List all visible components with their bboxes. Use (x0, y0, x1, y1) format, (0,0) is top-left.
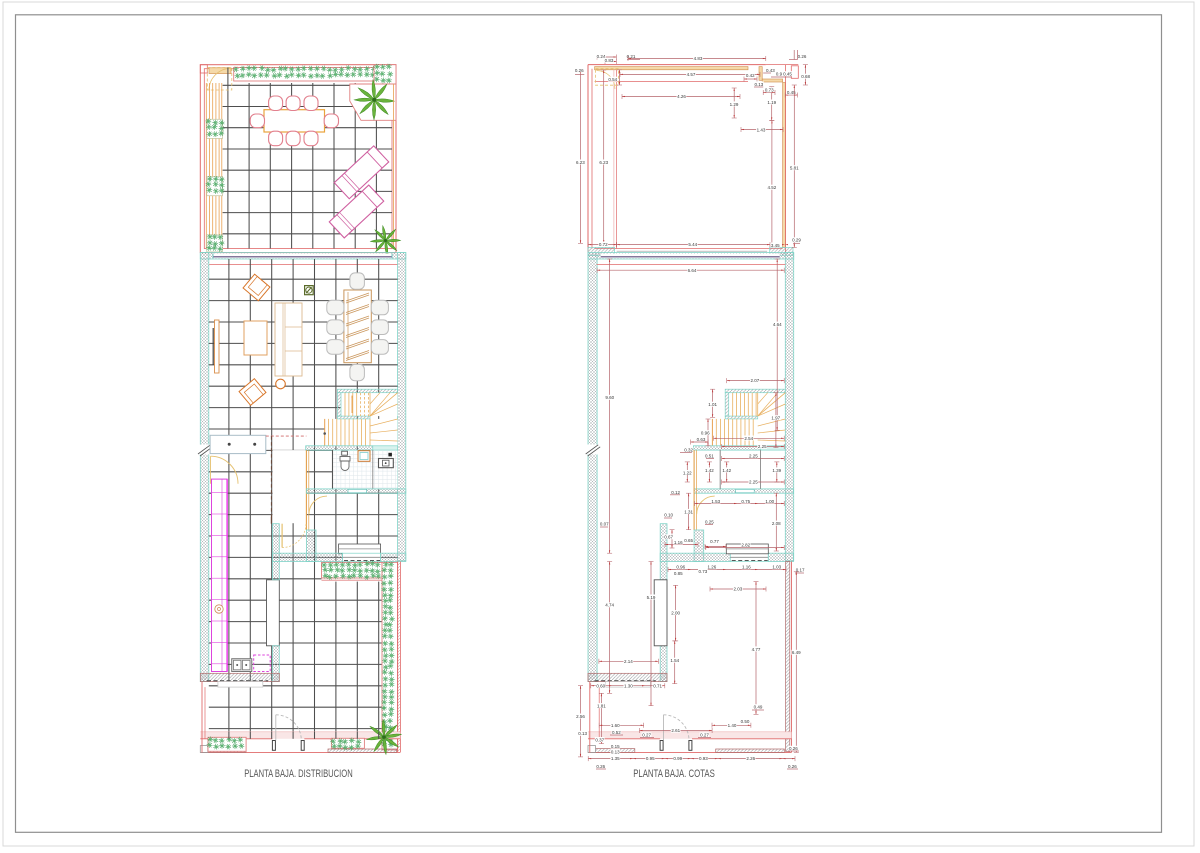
svg-text:9.60: 9.60 (605, 395, 614, 400)
svg-text:0.26: 0.26 (789, 746, 798, 751)
svg-text:1.19: 1.19 (767, 100, 776, 105)
svg-text:0.73: 0.73 (699, 569, 708, 574)
svg-text:1.97: 1.97 (771, 416, 780, 421)
svg-text:0.96: 0.96 (676, 565, 685, 570)
svg-text:2.56: 2.56 (576, 714, 585, 719)
svg-text:0.27: 0.27 (642, 733, 651, 738)
svg-text:4.64: 4.64 (773, 322, 782, 327)
svg-text:0.99: 0.99 (673, 756, 682, 761)
svg-text:0.13: 0.13 (578, 731, 587, 736)
svg-text:0.52: 0.52 (612, 730, 621, 735)
svg-text:1.35: 1.35 (611, 756, 620, 761)
svg-text:2.25: 2.25 (749, 454, 758, 459)
svg-text:2.61: 2.61 (671, 728, 680, 733)
svg-text:1.16: 1.16 (674, 540, 683, 545)
svg-text:1.00: 1.00 (765, 499, 774, 504)
svg-text:0.65: 0.65 (684, 538, 693, 543)
svg-text:5.19: 5.19 (647, 595, 656, 600)
svg-text:1.29: 1.29 (730, 102, 739, 107)
svg-text:0.96: 0.96 (701, 431, 710, 436)
svg-text:1.03: 1.03 (772, 565, 781, 570)
svg-text:1.53: 1.53 (711, 499, 720, 504)
svg-text:0.54: 0.54 (608, 77, 617, 82)
svg-text:1.26: 1.26 (708, 565, 717, 570)
svg-text:0.83: 0.83 (605, 58, 614, 63)
svg-text:0.93: 0.93 (699, 756, 708, 761)
svg-text:0.85: 0.85 (674, 571, 683, 576)
svg-text:1.42: 1.42 (705, 468, 714, 473)
svg-text:0.13: 0.13 (755, 82, 764, 87)
svg-text:1.22: 1.22 (683, 470, 692, 475)
svg-text:1.43: 1.43 (757, 127, 766, 132)
svg-text:6.64: 6.64 (688, 268, 697, 273)
svg-text:2.82: 2.82 (741, 543, 750, 548)
svg-text:2.26: 2.26 (746, 756, 755, 761)
svg-text:1.54: 1.54 (670, 658, 679, 663)
svg-text:0.95: 0.95 (646, 756, 655, 761)
svg-text:0.51: 0.51 (705, 454, 714, 459)
svg-text:0.63: 0.63 (697, 437, 706, 442)
svg-text:2.00: 2.00 (671, 611, 680, 616)
svg-text:0.07: 0.07 (600, 522, 609, 527)
svg-text:0.73: 0.73 (765, 88, 774, 93)
svg-text:PLANTA BAJA. DISTRIBUCION: PLANTA BAJA. DISTRIBUCION (244, 768, 353, 780)
svg-text:0.32: 0.32 (684, 448, 693, 453)
svg-text:1.60: 1.60 (611, 723, 620, 728)
svg-text:0.71: 0.71 (653, 683, 662, 688)
svg-text:1.81: 1.81 (597, 704, 606, 709)
svg-text:0.29: 0.29 (792, 238, 801, 243)
svg-text:0.26: 0.26 (788, 764, 797, 769)
svg-text:0.67: 0.67 (664, 535, 673, 540)
svg-text:4.74: 4.74 (605, 603, 614, 608)
svg-text:0.50: 0.50 (741, 719, 750, 724)
svg-text:2.07: 2.07 (751, 378, 760, 383)
svg-text:6.23: 6.23 (576, 160, 585, 165)
svg-text:3.45: 3.45 (771, 243, 780, 248)
svg-text:0.43: 0.43 (766, 68, 775, 73)
svg-text:PLANTA BAJA. COTAS: PLANTA BAJA. COTAS (633, 768, 715, 780)
svg-text:0.27: 0.27 (700, 733, 709, 738)
svg-text:0.60: 0.60 (596, 683, 605, 688)
svg-text:4.57: 4.57 (687, 72, 696, 77)
svg-text:0.26: 0.26 (798, 54, 807, 59)
svg-text:2.25: 2.25 (758, 444, 767, 449)
svg-text:4.26: 4.26 (677, 94, 686, 99)
svg-text:1.40: 1.40 (728, 723, 737, 728)
svg-text:0.42: 0.42 (746, 73, 755, 78)
svg-text:0.26: 0.26 (596, 764, 605, 769)
svg-text:0.45: 0.45 (787, 90, 796, 95)
svg-text:0.77: 0.77 (710, 539, 719, 544)
svg-text:1.01: 1.01 (708, 402, 717, 407)
svg-text:0.15: 0.15 (611, 744, 620, 749)
svg-text:0.68: 0.68 (801, 74, 810, 79)
svg-text:0.72: 0.72 (599, 242, 608, 247)
svg-text:0.49: 0.49 (754, 705, 763, 710)
svg-text:0.37: 0.37 (595, 737, 604, 742)
svg-text:1.16: 1.16 (742, 565, 751, 570)
svg-text:0.26: 0.26 (575, 68, 584, 73)
svg-text:6.23: 6.23 (599, 160, 608, 165)
svg-text:0.45: 0.45 (783, 72, 792, 77)
svg-text:0.10: 0.10 (664, 513, 673, 518)
svg-text:0.75: 0.75 (741, 499, 750, 504)
svg-text:2.08: 2.08 (772, 521, 781, 526)
svg-text:1.39: 1.39 (772, 468, 781, 473)
svg-text:0.13: 0.13 (611, 749, 620, 754)
svg-text:1.31: 1.31 (684, 509, 693, 514)
svg-text:1.42: 1.42 (722, 468, 731, 473)
svg-text:4.77: 4.77 (752, 647, 761, 652)
svg-text:0.12: 0.12 (671, 490, 680, 495)
svg-text:0.25: 0.25 (705, 520, 714, 525)
svg-text:5.44: 5.44 (688, 242, 697, 247)
svg-text:1.30: 1.30 (624, 683, 633, 688)
svg-text:0.9: 0.9 (776, 72, 783, 77)
svg-text:6.49: 6.49 (792, 650, 801, 655)
svg-text:4.52: 4.52 (768, 185, 777, 190)
svg-text:2.03: 2.03 (734, 587, 743, 592)
svg-text:2.54: 2.54 (744, 436, 753, 441)
svg-text:5.81: 5.81 (790, 166, 799, 171)
svg-text:2.14: 2.14 (624, 659, 633, 664)
svg-text:4.83: 4.83 (694, 56, 703, 61)
svg-text:2.25: 2.25 (749, 480, 758, 485)
